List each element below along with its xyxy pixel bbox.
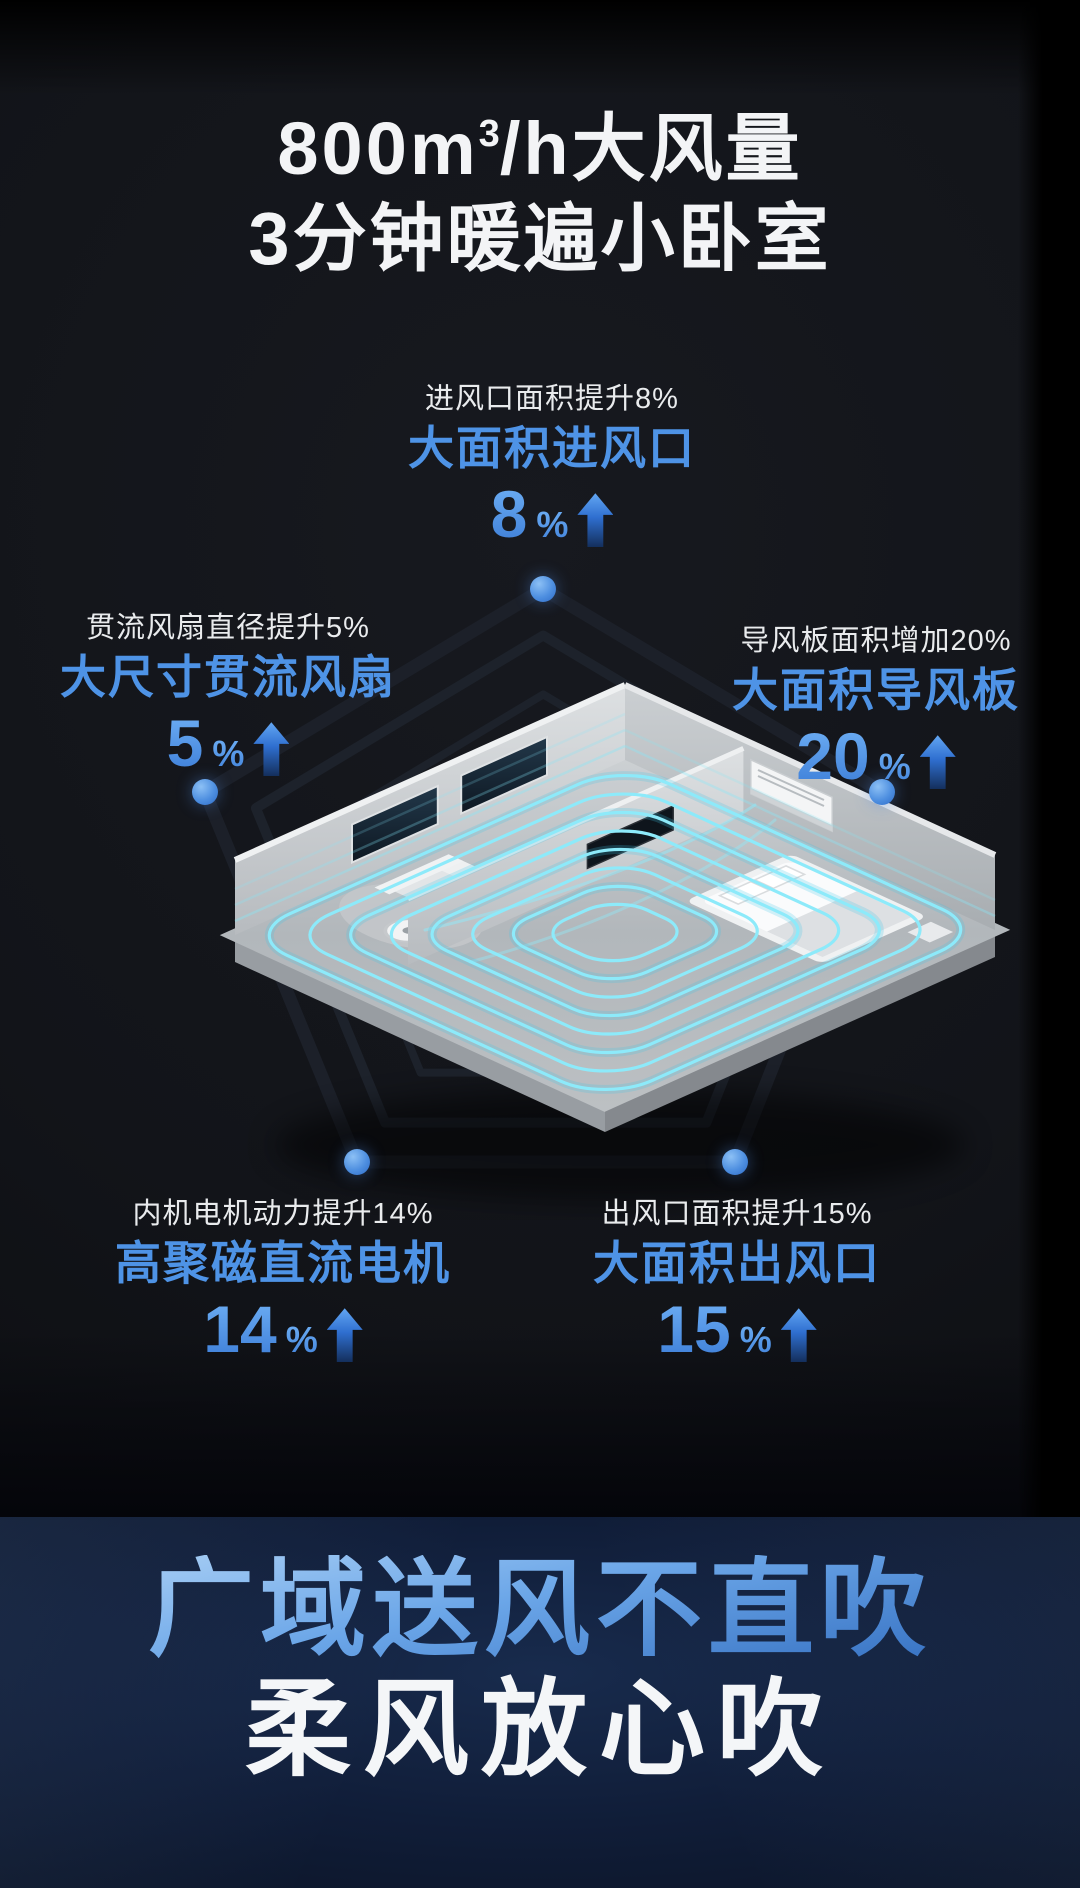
stat-air-deflector: 导风板面积增加20% 大面积导风板 20 % (732, 625, 1020, 789)
stat-label: 出风口面积提升15% (593, 1198, 881, 1231)
stat-value: 5 (167, 710, 204, 776)
stat-value: 14 (203, 1296, 276, 1362)
stat-unit: % (212, 736, 244, 776)
stat-value-row: 15 % (593, 1296, 881, 1362)
stat-value: 8 (491, 481, 528, 547)
up-arrow-icon (781, 1308, 817, 1362)
stat-air-outlet: 出风口面积提升15% 大面积出风口 15 % (593, 1198, 881, 1362)
stat-value: 15 (657, 1296, 730, 1362)
up-arrow-icon (577, 493, 613, 547)
stat-unit: % (286, 1322, 318, 1362)
bottom-banner: 广域送风不直吹 柔风放心吹 (0, 1517, 1080, 1888)
up-arrow-icon (920, 735, 956, 789)
stat-crossflow-fan: 贯流风扇直径提升5% 大尺寸贯流风扇 5 % (60, 612, 396, 776)
pentagon-vertex-dot (192, 779, 218, 805)
pentagon-vertex-dot (530, 576, 556, 602)
stat-name: 大面积导风板 (732, 664, 1020, 717)
stat-dc-motor: 内机电机动力提升14% 高聚磁直流电机 14 % (115, 1198, 451, 1362)
feature-section: 800m3/h大风量 3分钟暖遍小卧室 进风口面积提升8% 大面积进风口 8 %… (0, 0, 1080, 1517)
stat-label: 进风口面积提升8% (408, 383, 696, 416)
stat-value-row: 8 % (408, 481, 696, 547)
promo-page: 800m3/h大风量 3分钟暖遍小卧室 进风口面积提升8% 大面积进风口 8 %… (0, 0, 1080, 1888)
stat-value: 20 (796, 723, 869, 789)
pentagon-vertex-dot (344, 1149, 370, 1175)
up-arrow-icon (327, 1308, 363, 1362)
stat-value-row: 5 % (60, 710, 396, 776)
stat-unit: % (879, 749, 911, 789)
stat-name: 大面积进风口 (408, 422, 696, 475)
stat-name: 大面积出风口 (593, 1237, 881, 1290)
stat-unit: % (536, 507, 568, 547)
stat-value-row: 20 % (732, 723, 1020, 789)
stat-value-row: 14 % (115, 1296, 451, 1362)
stat-air-intake: 进风口面积提升8% 大面积进风口 8 % (408, 383, 696, 547)
stat-name: 高聚磁直流电机 (115, 1237, 451, 1290)
stat-label: 内机电机动力提升14% (115, 1198, 451, 1231)
stat-unit: % (740, 1322, 772, 1362)
stat-label: 导风板面积增加20% (732, 625, 1020, 658)
stat-label: 贯流风扇直径提升5% (60, 612, 396, 645)
banner-headline: 广域送风不直吹 (0, 1555, 1080, 1666)
up-arrow-icon (253, 722, 289, 776)
pentagon-vertex-dot (722, 1149, 748, 1175)
stat-name: 大尺寸贯流风扇 (60, 651, 396, 704)
banner-subheadline: 柔风放心吹 (0, 1675, 1080, 1786)
